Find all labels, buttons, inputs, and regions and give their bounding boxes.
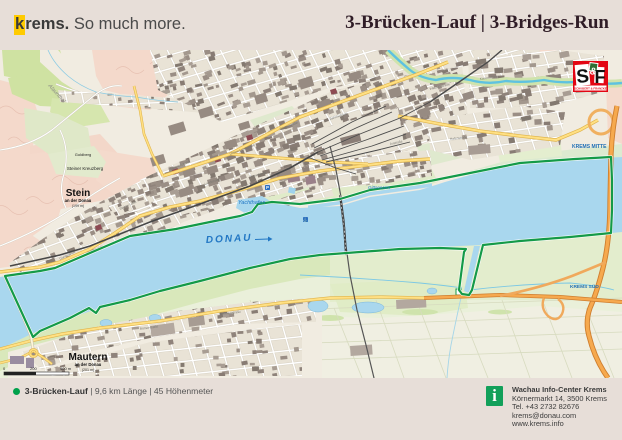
svg-text:400 m: 400 m: [60, 366, 72, 371]
svg-text:(201 m): (201 m): [82, 368, 94, 372]
svg-text:an der Donau: an der Donau: [65, 198, 92, 203]
svg-text:SCHUBERT & FRANZKE: SCHUBERT & FRANZKE: [574, 87, 607, 91]
svg-text:⚓: ⚓: [303, 217, 308, 222]
svg-text:200: 200: [30, 366, 37, 371]
svg-text:KREMS SÜD: KREMS SÜD: [570, 283, 599, 290]
svg-text:Yachthafen: Yachthafen: [238, 200, 265, 206]
svg-text:(199 m): (199 m): [72, 204, 84, 208]
svg-text:Goldberg: Goldberg: [75, 152, 91, 157]
svg-text:Gittseearm: Gittseearm: [368, 185, 390, 190]
svg-text:Steiner Kreuzberg: Steiner Kreuzberg: [67, 166, 104, 171]
svg-text:an der Donau: an der Donau: [75, 362, 102, 367]
svg-text:S: S: [575, 66, 589, 88]
svg-text:F: F: [595, 67, 606, 87]
svg-text:P: P: [266, 185, 269, 190]
svg-text:KREMS MITTE: KREMS MITTE: [572, 144, 607, 150]
